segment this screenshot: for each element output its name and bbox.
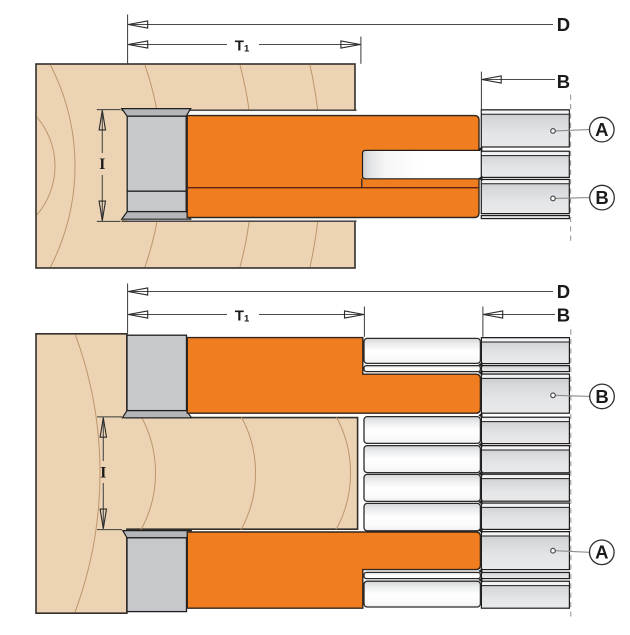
svg-text:D: D [557, 281, 570, 302]
svg-text:B: B [557, 304, 570, 325]
svg-text:D: D [557, 14, 570, 35]
svg-text:T1: T1 [235, 38, 250, 55]
svg-text:A: A [595, 119, 608, 140]
svg-text:I: I [99, 156, 105, 173]
svg-text:B: B [595, 187, 608, 208]
svg-text:B: B [557, 71, 570, 92]
svg-text:I: I [100, 464, 106, 481]
svg-text:B: B [595, 386, 608, 407]
svg-text:A: A [595, 542, 608, 563]
svg-text:T1: T1 [235, 307, 250, 324]
